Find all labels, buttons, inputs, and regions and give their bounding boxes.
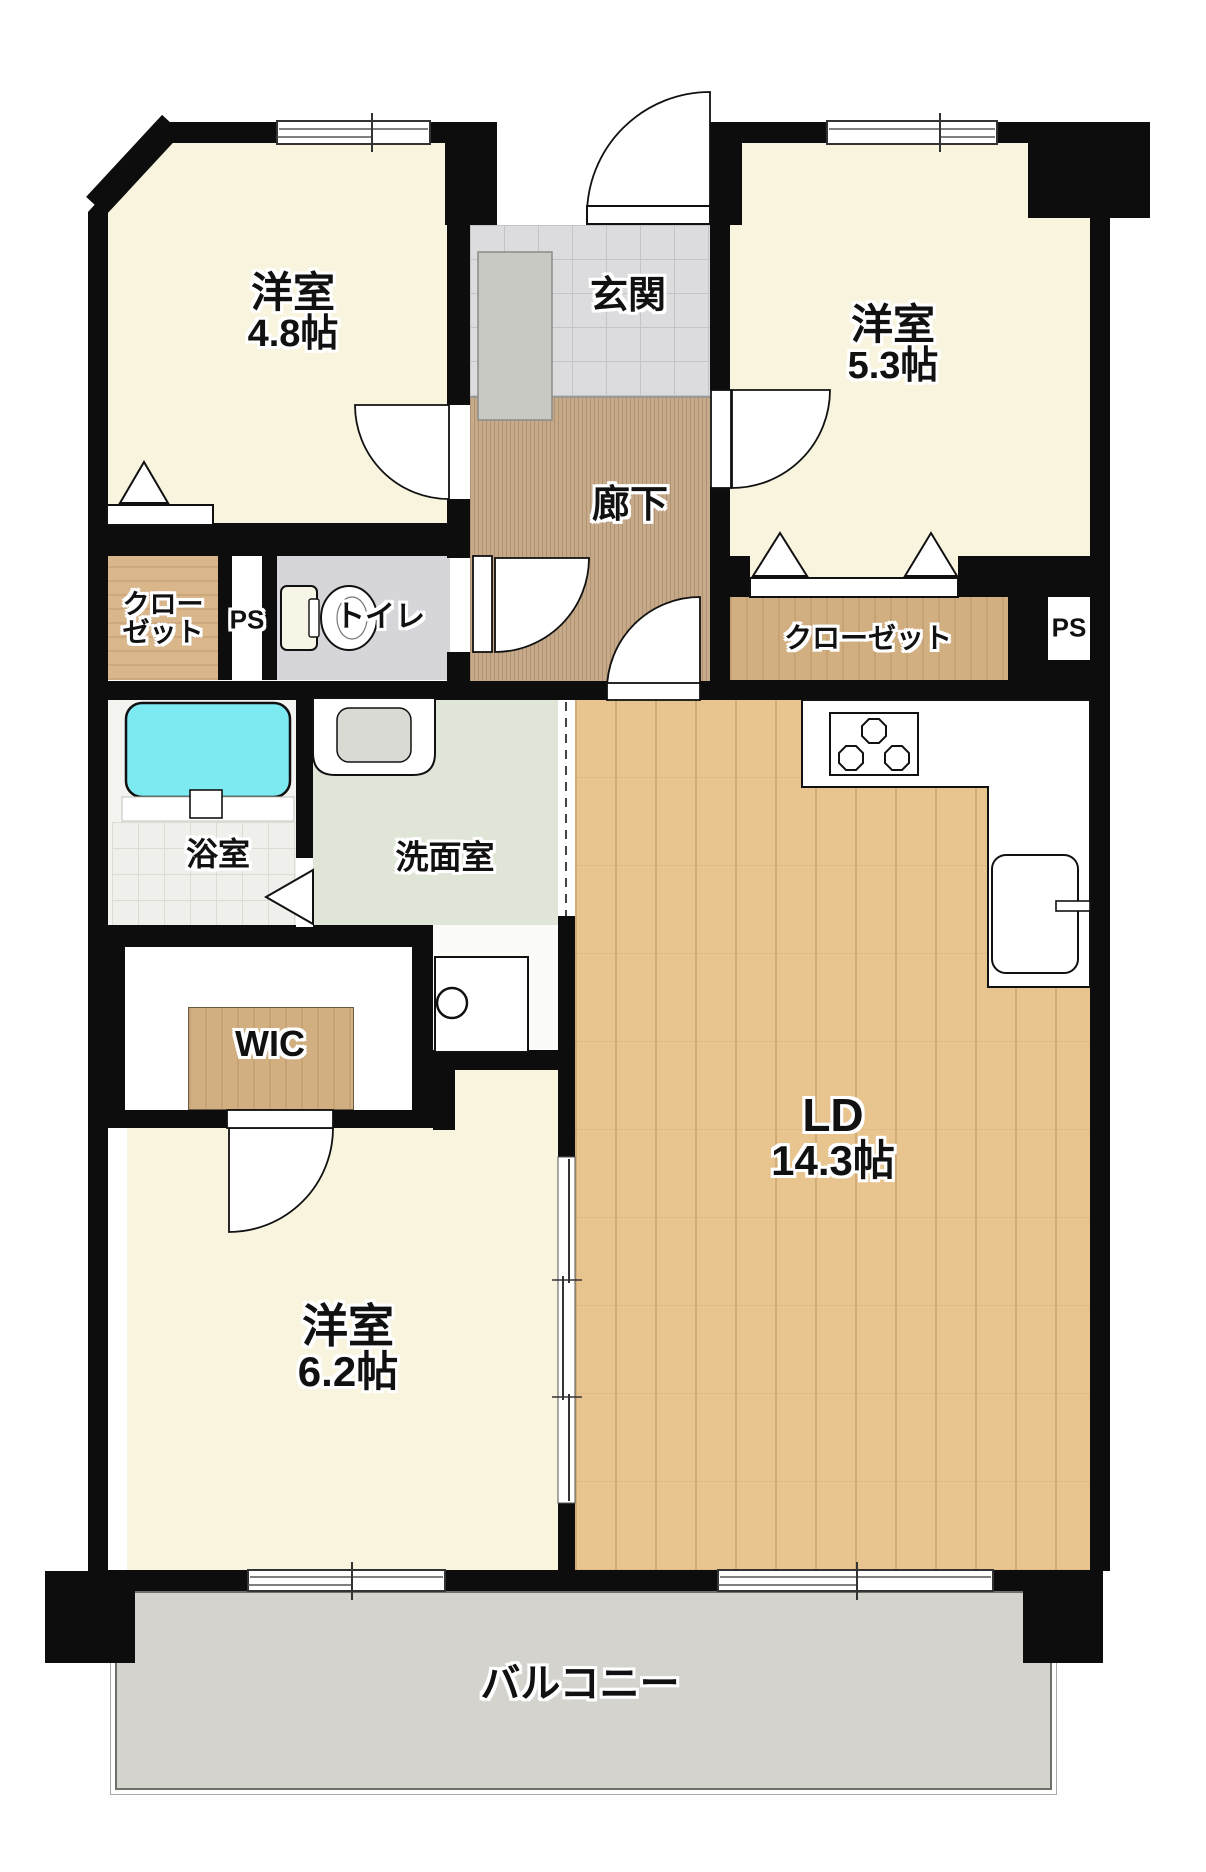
burner-left [839,746,863,770]
label-bath: 浴室 [186,838,250,872]
label-room-4-8: 洋室4.8帖 [248,271,339,355]
room48-door-arc [355,405,449,499]
kitchen-faucet [1056,901,1090,911]
label-living-dining: LD14.3帖 [771,1091,895,1183]
washbasin [313,698,435,775]
label-washroom: 洗面室 [396,841,495,876]
label-corridor: 廊下 [592,486,668,526]
floor-plan: 洋室4.8帖 玄関 洋室5.3帖 廊下 クローゼット PS トイレ クローゼット… [0,0,1206,1872]
room62-door [227,1110,333,1232]
entrance-door [587,92,710,224]
kitchen-counter [802,700,1090,987]
closet-door-room53 [750,533,958,597]
window-room53 [827,113,997,152]
label-room-5-3: 洋室5.3帖 [848,303,939,387]
window-room62-balcony [248,1562,445,1600]
kitchen-sink [992,855,1078,973]
ld-door [607,597,700,700]
room53-door [711,390,830,488]
label-balcony: バルコニー [480,1663,679,1705]
sliding-door-room62-ld [552,1157,582,1503]
burner-right [885,746,909,770]
label-ps-left: PS [230,606,265,633]
label-closet-left: クローゼット [123,591,204,648]
window-room48 [277,113,430,152]
closet-door-room48 [107,462,213,525]
label-entrance: 玄関 [590,277,666,317]
label-wic: WIC [235,1025,305,1063]
label-closet-right: クローゼット [784,623,952,652]
label-ps-right: PS [1052,614,1087,641]
label-room-6-2: 洋室6.2帖 [298,1302,398,1394]
shoe-cabinet [478,252,552,420]
window-ld-balcony [718,1562,993,1600]
toilet-door [473,556,589,652]
bath-folding-door [266,858,313,927]
washer-pan [435,957,528,1052]
sliding-door-washroom-ld [558,700,575,916]
bathtub [122,703,294,821]
burner-top [862,719,886,743]
label-toilet: トイレ [335,601,425,633]
